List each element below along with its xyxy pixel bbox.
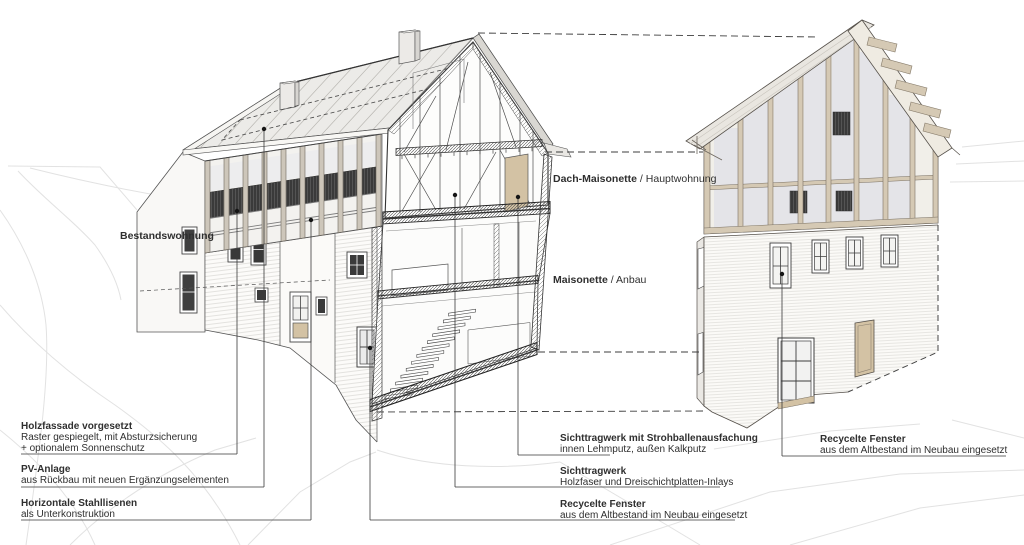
masonry-base [697, 225, 938, 428]
axonometric-drawing [0, 0, 1024, 545]
window [180, 272, 197, 313]
entry-door [290, 292, 311, 342]
large-window [778, 338, 814, 409]
ridge-reference-line [478, 33, 818, 37]
timber-gable [686, 20, 960, 240]
window [846, 237, 863, 269]
window [316, 297, 327, 315]
chimney [399, 30, 420, 64]
left-gable-wall [137, 152, 205, 332]
window [347, 252, 367, 278]
drawing-canvas: Bestandswohnung Dach-Maisonette / Hauptw… [0, 0, 1024, 545]
tall-door [855, 320, 874, 377]
window [182, 227, 197, 254]
window [255, 288, 268, 302]
window [812, 240, 829, 273]
chimney [280, 81, 299, 110]
cut-wall-left [372, 226, 382, 421]
recycled-window [770, 243, 791, 288]
window [881, 235, 898, 267]
left-building [137, 30, 571, 442]
base-reference-line [377, 411, 703, 412]
right-building [686, 20, 960, 428]
